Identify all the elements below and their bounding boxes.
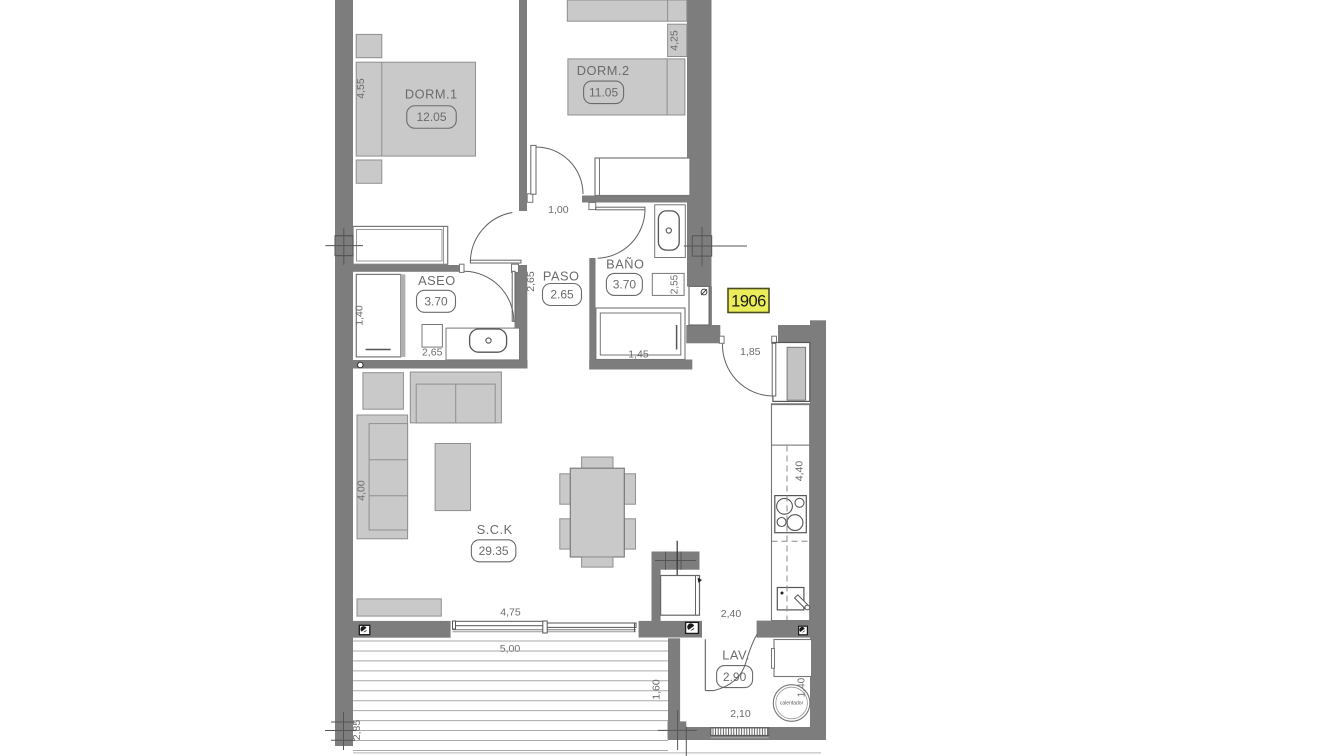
svg-text:1,40: 1,40 [797, 677, 808, 697]
svg-text:1906: 1906 [731, 293, 766, 311]
svg-text:3.70: 3.70 [424, 295, 448, 309]
svg-text:LAV.: LAV. [722, 648, 750, 663]
svg-text:4,75: 4,75 [500, 607, 521, 619]
svg-text:4,00: 4,00 [356, 480, 368, 501]
svg-text:4,25: 4,25 [669, 30, 681, 51]
svg-text:1,45: 1,45 [628, 349, 649, 361]
svg-text:2.90: 2.90 [723, 670, 747, 684]
svg-text:4,40: 4,40 [793, 461, 805, 482]
svg-text:PASO: PASO [543, 269, 580, 284]
svg-text:3.70: 3.70 [613, 278, 637, 292]
svg-text:S.C.K: S.C.K [477, 522, 513, 537]
svg-text:1,60: 1,60 [651, 679, 663, 700]
svg-text:4,55: 4,55 [355, 78, 367, 99]
svg-text:2,55: 2,55 [670, 274, 681, 294]
svg-text:5,00: 5,00 [500, 643, 521, 655]
svg-text:2,65: 2,65 [422, 347, 443, 359]
svg-text:29.35: 29.35 [479, 544, 509, 558]
svg-text:1,40: 1,40 [354, 305, 366, 326]
svg-text:1,00: 1,00 [548, 204, 569, 216]
svg-text:2,40: 2,40 [721, 608, 742, 620]
svg-text:12.05: 12.05 [416, 110, 446, 124]
svg-text:1,85: 1,85 [740, 346, 761, 358]
svg-text:BAÑO: BAÑO [606, 257, 644, 272]
svg-text:DORM.1: DORM.1 [405, 87, 458, 102]
svg-text:2,65: 2,65 [525, 271, 537, 292]
svg-text:11.05: 11.05 [589, 86, 618, 100]
svg-text:2,85: 2,85 [351, 720, 363, 741]
svg-text:2,10: 2,10 [730, 708, 751, 720]
svg-text:ASEO: ASEO [418, 273, 456, 288]
svg-text:calentador: calentador [780, 701, 804, 707]
svg-text:2.65: 2.65 [550, 288, 574, 302]
svg-text:DORM.2: DORM.2 [577, 63, 630, 78]
